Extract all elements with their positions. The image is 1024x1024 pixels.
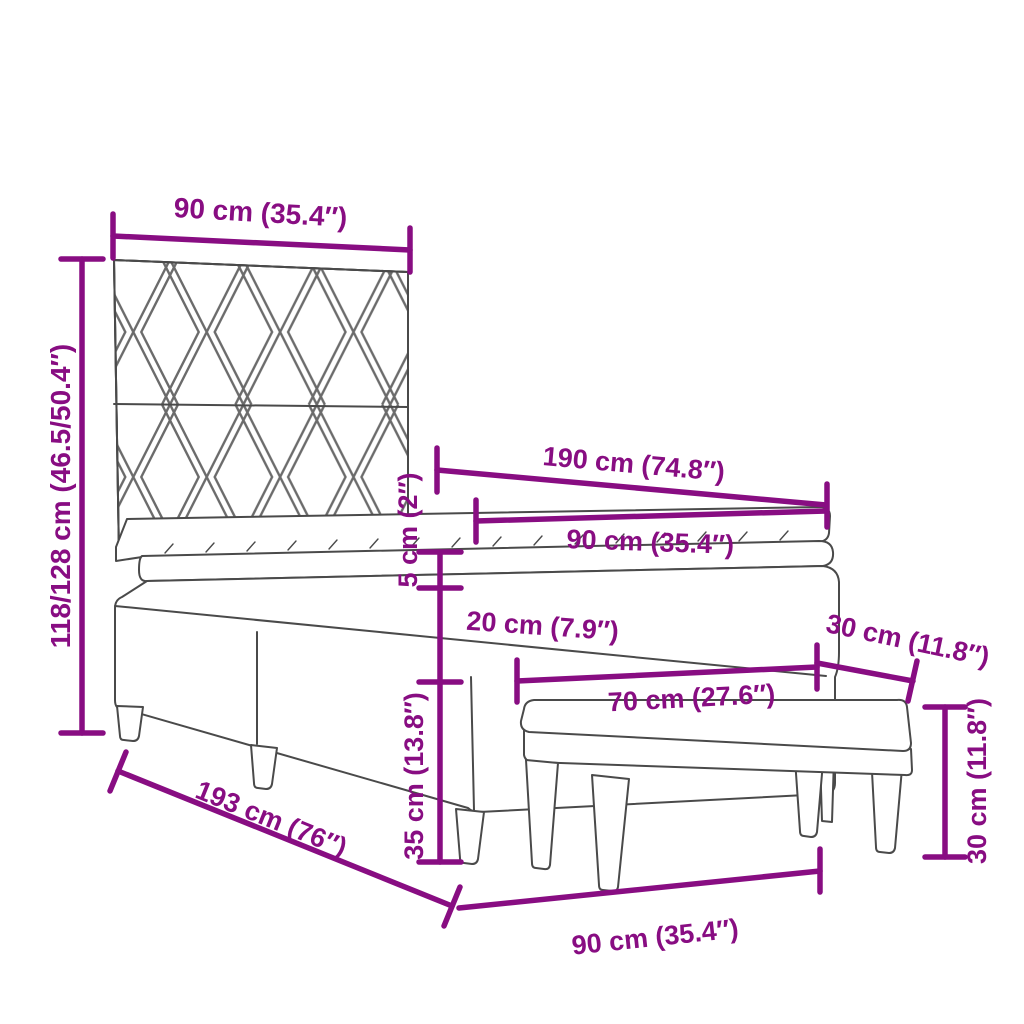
dim-bench-height-line (925, 707, 965, 857)
bench-leg-front-left (526, 760, 558, 869)
dim-mattress-width-label: 90 cm (35.4″) (566, 524, 734, 560)
dim-base-height-label: 35 cm (13.8″) (399, 692, 429, 860)
dim-bench-height-label: 30 cm (11.8″) (962, 698, 992, 864)
bed-leg (251, 745, 277, 789)
dim-frame-width-line (459, 849, 820, 908)
diagram-svg: 90 cm (35.4″) 118/128 cm (46.5/50.4″) 19… (0, 0, 1024, 1024)
dim-headboard-width-label: 90 cm (35.4″) (173, 192, 348, 233)
dim-frame-width-label: 90 cm (35.4″) (570, 913, 740, 960)
dim-total-height-label: 118/128 cm (46.5/50.4″) (45, 344, 76, 649)
dim-bench-depth-label: 30 cm (11.8″) (824, 608, 993, 672)
bench-leg-back-left (592, 775, 629, 891)
bed-leg (456, 809, 484, 864)
headboard (114, 260, 408, 556)
bed-leg (117, 706, 143, 741)
dim-frame-length-label: 193 cm (76″) (192, 775, 352, 863)
headboard-pattern (114, 260, 408, 556)
dim-topper-thickness-label: 5 cm (2″) (393, 473, 423, 588)
dimension-diagram: 90 cm (35.4″) 118/128 cm (46.5/50.4″) 19… (0, 0, 1024, 1024)
